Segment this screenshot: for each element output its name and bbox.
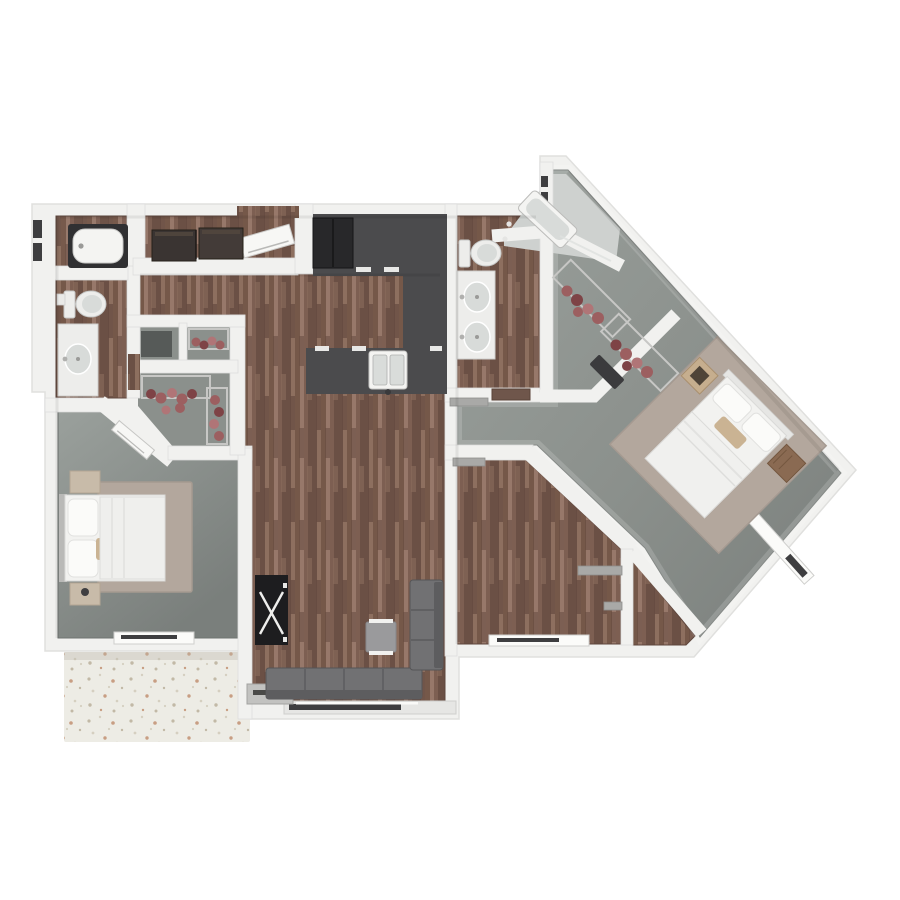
nightstand <box>70 471 100 493</box>
bedroom-1-window <box>114 632 194 644</box>
wall <box>133 360 238 373</box>
wall <box>56 266 128 280</box>
floor-plan-image <box>0 0 900 900</box>
storage-box <box>141 331 172 357</box>
wall <box>621 549 633 645</box>
patio-shadow <box>64 652 250 660</box>
pillow <box>68 540 98 577</box>
wall <box>238 448 252 719</box>
master-bath-door-open <box>492 389 530 400</box>
bathroom-1-door-gap <box>128 354 140 390</box>
console-table <box>255 575 288 645</box>
toilet <box>64 291 106 318</box>
dining-window <box>489 635 589 646</box>
window-left-1 <box>33 220 42 238</box>
wall <box>179 323 187 365</box>
wall <box>230 315 245 455</box>
shower-head <box>502 236 507 241</box>
kitchen-counter-right <box>403 272 447 352</box>
sliding-glass-door <box>284 701 456 714</box>
duvet <box>100 497 165 579</box>
nightstand-decor <box>81 588 89 596</box>
accent-chair <box>366 619 396 655</box>
kitchen-sink <box>369 351 407 395</box>
double-sink-vanity <box>457 271 495 359</box>
wall-shelf <box>604 602 622 610</box>
toilet-2 <box>459 240 501 267</box>
bedroom-1 <box>59 471 192 605</box>
window-peak-1 <box>541 176 548 187</box>
floor-plan-svg <box>0 0 900 900</box>
sink-vanity <box>58 324 98 396</box>
patio <box>64 652 250 742</box>
window-left-2 <box>33 243 42 261</box>
wall-shelf <box>578 566 622 575</box>
shower-head <box>506 221 511 226</box>
pillow <box>68 499 98 536</box>
bathtub <box>68 224 128 268</box>
